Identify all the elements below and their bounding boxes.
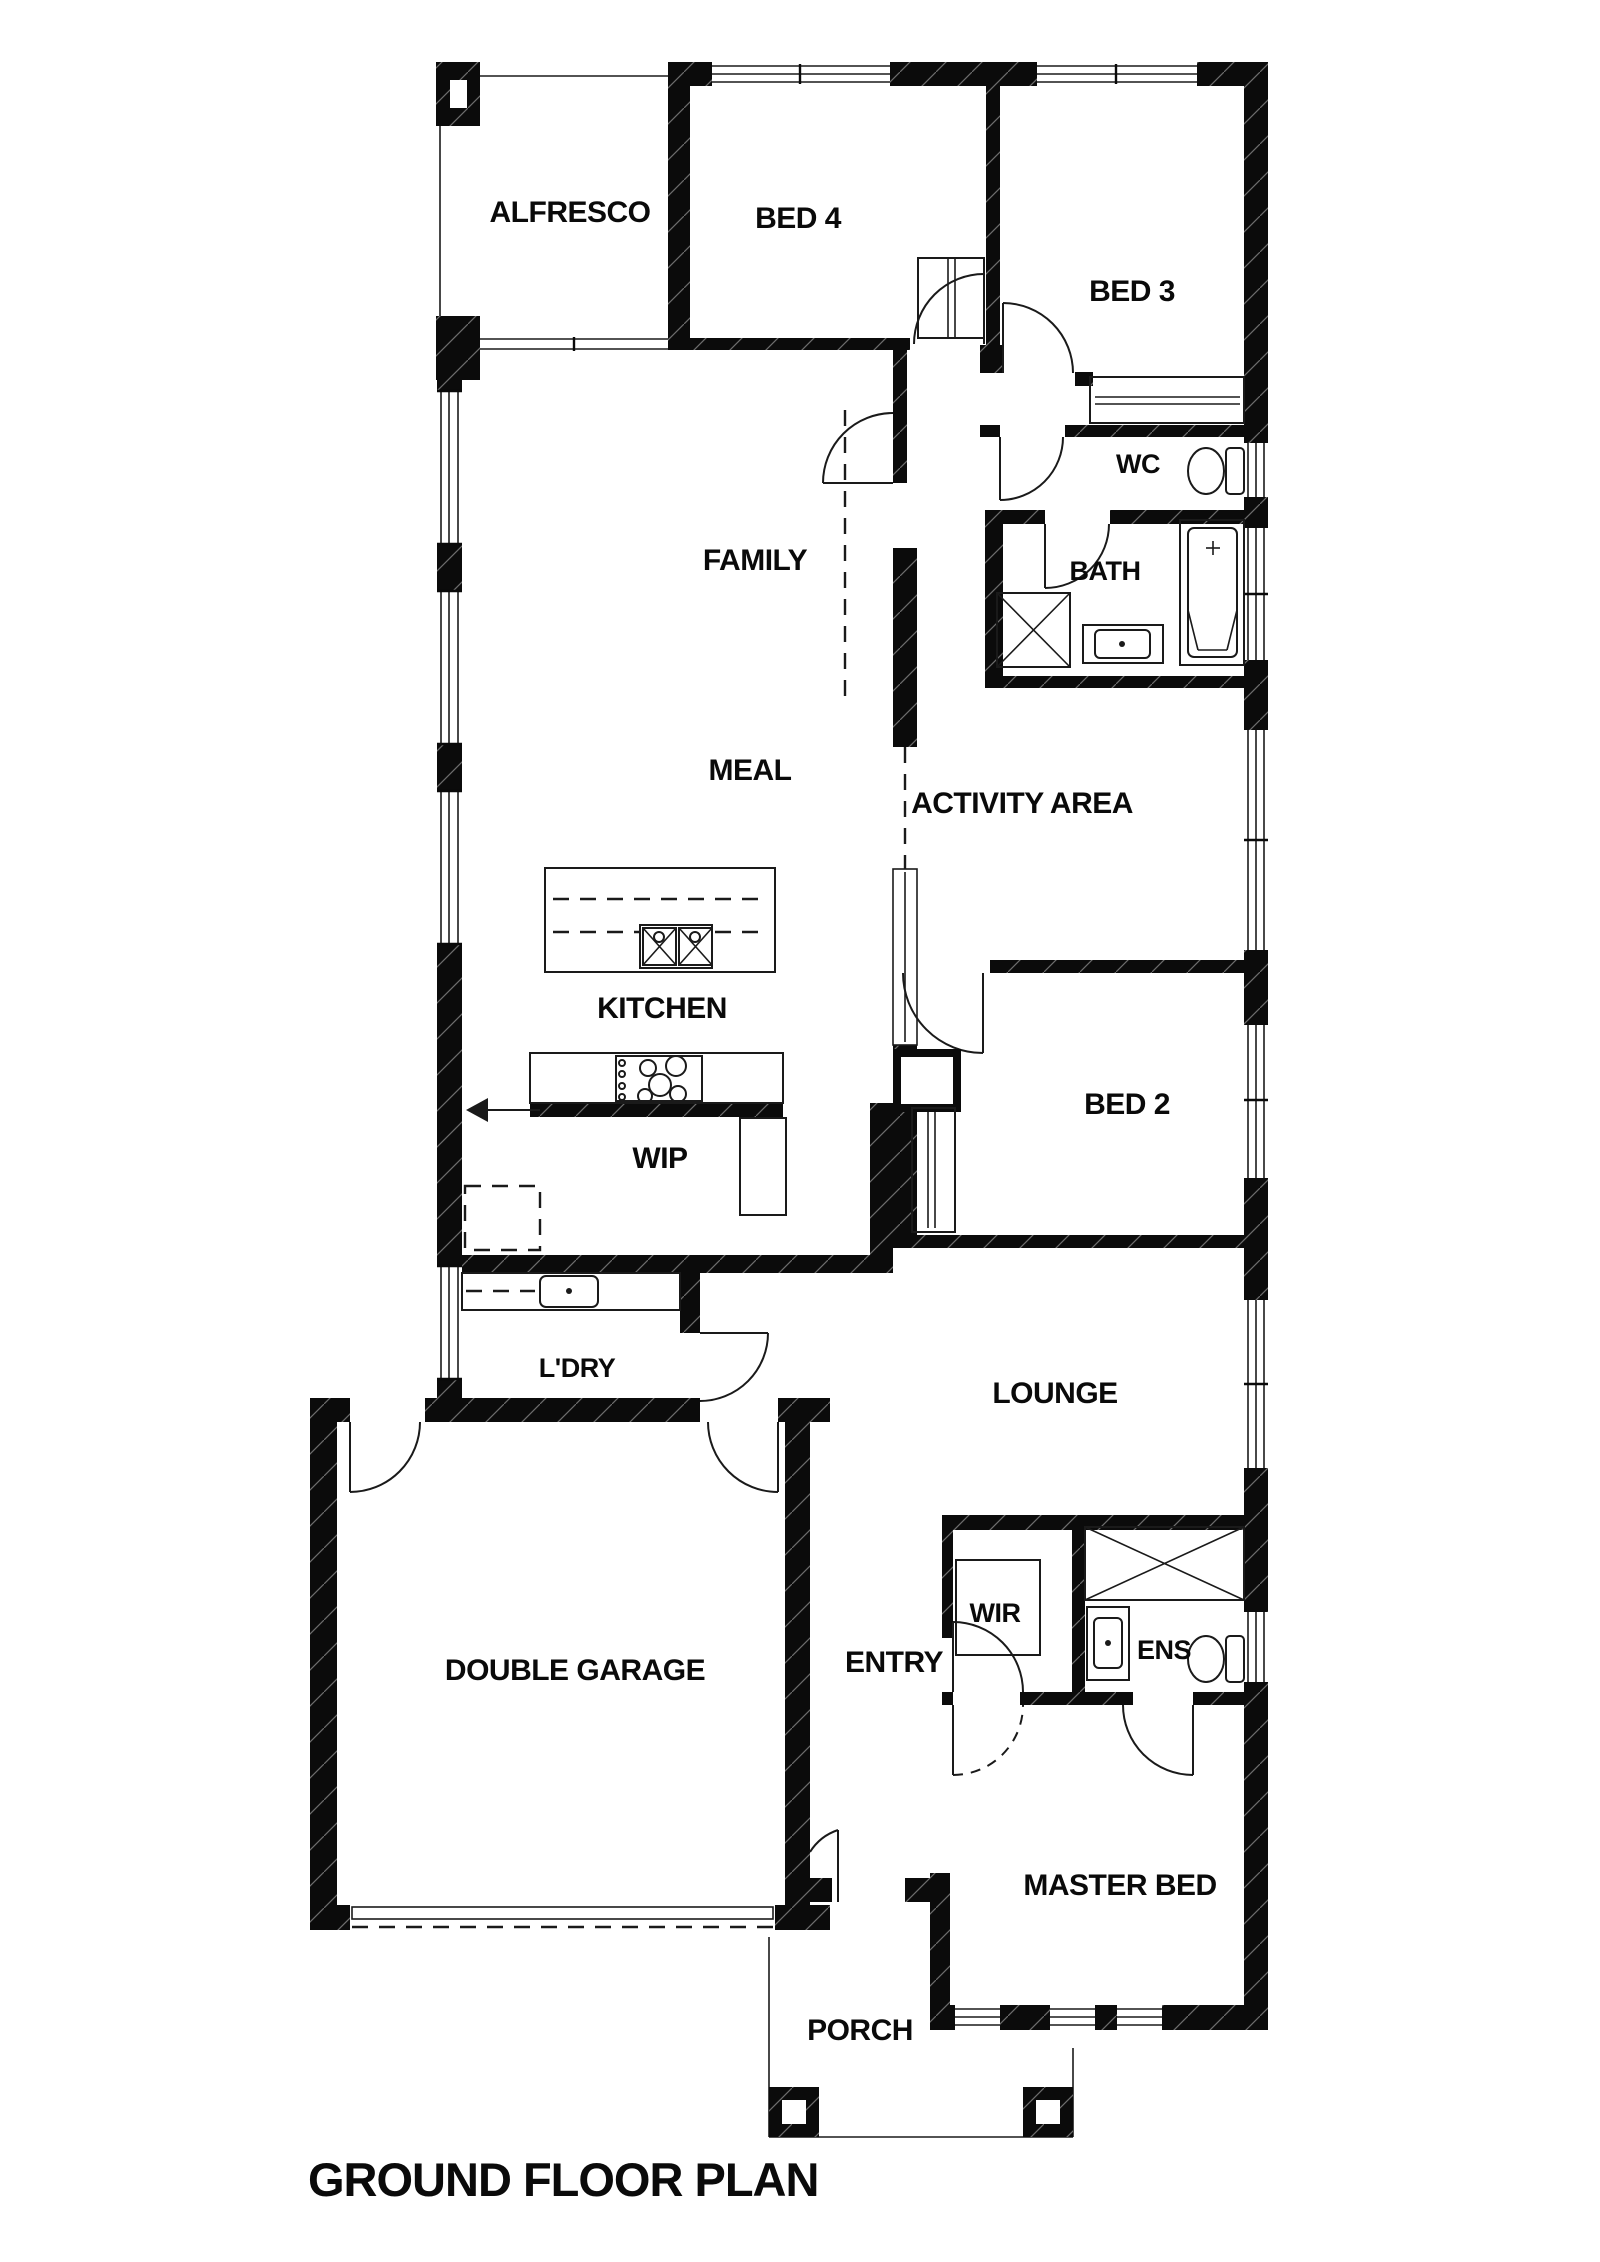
room-label-ens: ENS <box>1137 1635 1191 1665</box>
room-label-wip: WIP <box>632 1142 687 1175</box>
window-ldry <box>437 1265 462 1380</box>
window-bed4 <box>712 62 890 86</box>
bathtub <box>1180 520 1244 665</box>
window-lounge <box>1244 1300 1268 1468</box>
window-ens <box>1244 1612 1268 1682</box>
ens-shower <box>1085 1527 1244 1600</box>
door-garage-right <box>708 1422 778 1492</box>
kitchen-island <box>545 868 775 972</box>
room-label-entry: ENTRY <box>845 1646 944 1679</box>
floor-plan-sheet: ALFRESCO BED 4 BED 3 FAMILY WC BATH MEAL… <box>0 0 1600 2262</box>
kitchen-bench <box>530 1053 783 1103</box>
room-label-wc: WC <box>1116 449 1160 479</box>
laundry-bench <box>462 1273 680 1310</box>
door-master <box>953 1705 1023 1775</box>
robe-bed3 <box>1090 377 1244 423</box>
wip-fridge-space <box>465 1186 540 1250</box>
door-wir <box>953 1622 1023 1692</box>
robe-bed2 <box>912 1108 955 1232</box>
room-label-bed2: BED 2 <box>1084 1088 1170 1121</box>
direction-arrow <box>466 1098 540 1122</box>
porch-pillar-left <box>769 2087 819 2137</box>
room-label-bath: BATH <box>1070 556 1141 586</box>
ens-vanity <box>1087 1607 1129 1680</box>
door-bed4 <box>914 274 984 344</box>
room-label-family: FAMILY <box>703 544 808 577</box>
room-label-meal: MEAL <box>709 754 792 787</box>
room-label-master: MASTER BED <box>1023 1869 1216 1902</box>
toilet-ens <box>1188 1636 1244 1682</box>
window-family-2 <box>437 590 462 745</box>
door-ldry <box>700 1333 768 1401</box>
window-wc <box>1244 443 1268 497</box>
alfresco-sliding-door <box>480 337 668 351</box>
wip-bench <box>740 1118 786 1215</box>
robe-bed4 <box>918 258 984 338</box>
room-label-kitchen: KITCHEN <box>597 992 727 1025</box>
floor-plan-drawing: ALFRESCO BED 4 BED 3 FAMILY WC BATH MEAL… <box>0 0 1600 2262</box>
garage-door <box>352 1907 773 1927</box>
window-activity <box>1244 730 1268 950</box>
toilet-wc <box>1188 448 1244 494</box>
window-bath <box>1244 528 1268 660</box>
room-label-garage: DOUBLE GARAGE <box>445 1654 705 1687</box>
door-ens <box>1123 1705 1193 1775</box>
room-label-porch: PORCH <box>807 2014 913 2047</box>
room-label-wir: WIR <box>970 1598 1021 1628</box>
room-label-activity: ACTIVITY AREA <box>911 787 1133 820</box>
cavity-slider-pocket <box>893 869 917 1045</box>
bath-shower <box>997 593 1070 667</box>
room-label-bed3: BED 3 <box>1089 275 1175 308</box>
window-bed2 <box>1244 1025 1268 1178</box>
window-master-2 <box>1050 2005 1095 2030</box>
room-label-alfresco: ALFRESCO <box>490 196 651 229</box>
walls-layer <box>310 62 1268 2030</box>
door-wc <box>1000 437 1063 500</box>
door-family-hall <box>823 413 893 483</box>
window-bed3 <box>1037 62 1197 86</box>
room-label-lounge: LOUNGE <box>992 1377 1117 1410</box>
door-garage-left <box>350 1422 420 1492</box>
linen-closet <box>897 1053 957 1108</box>
room-label-ldry: L'DRY <box>539 1353 616 1383</box>
window-family-1 <box>437 390 462 545</box>
room-label-bed4: BED 4 <box>755 202 842 235</box>
bath-vanity <box>1083 625 1163 663</box>
double-sink <box>640 925 712 968</box>
porch-pillar-right <box>1023 2087 1073 2137</box>
plan-title: GROUND FLOOR PLAN <box>308 2153 818 2206</box>
door-bed3 <box>1003 303 1073 373</box>
window-master-1 <box>955 2005 1000 2030</box>
window-master-3 <box>1117 2005 1162 2030</box>
cooktop <box>616 1056 702 1103</box>
windows-layer <box>437 62 1268 2030</box>
window-meal <box>437 790 462 945</box>
